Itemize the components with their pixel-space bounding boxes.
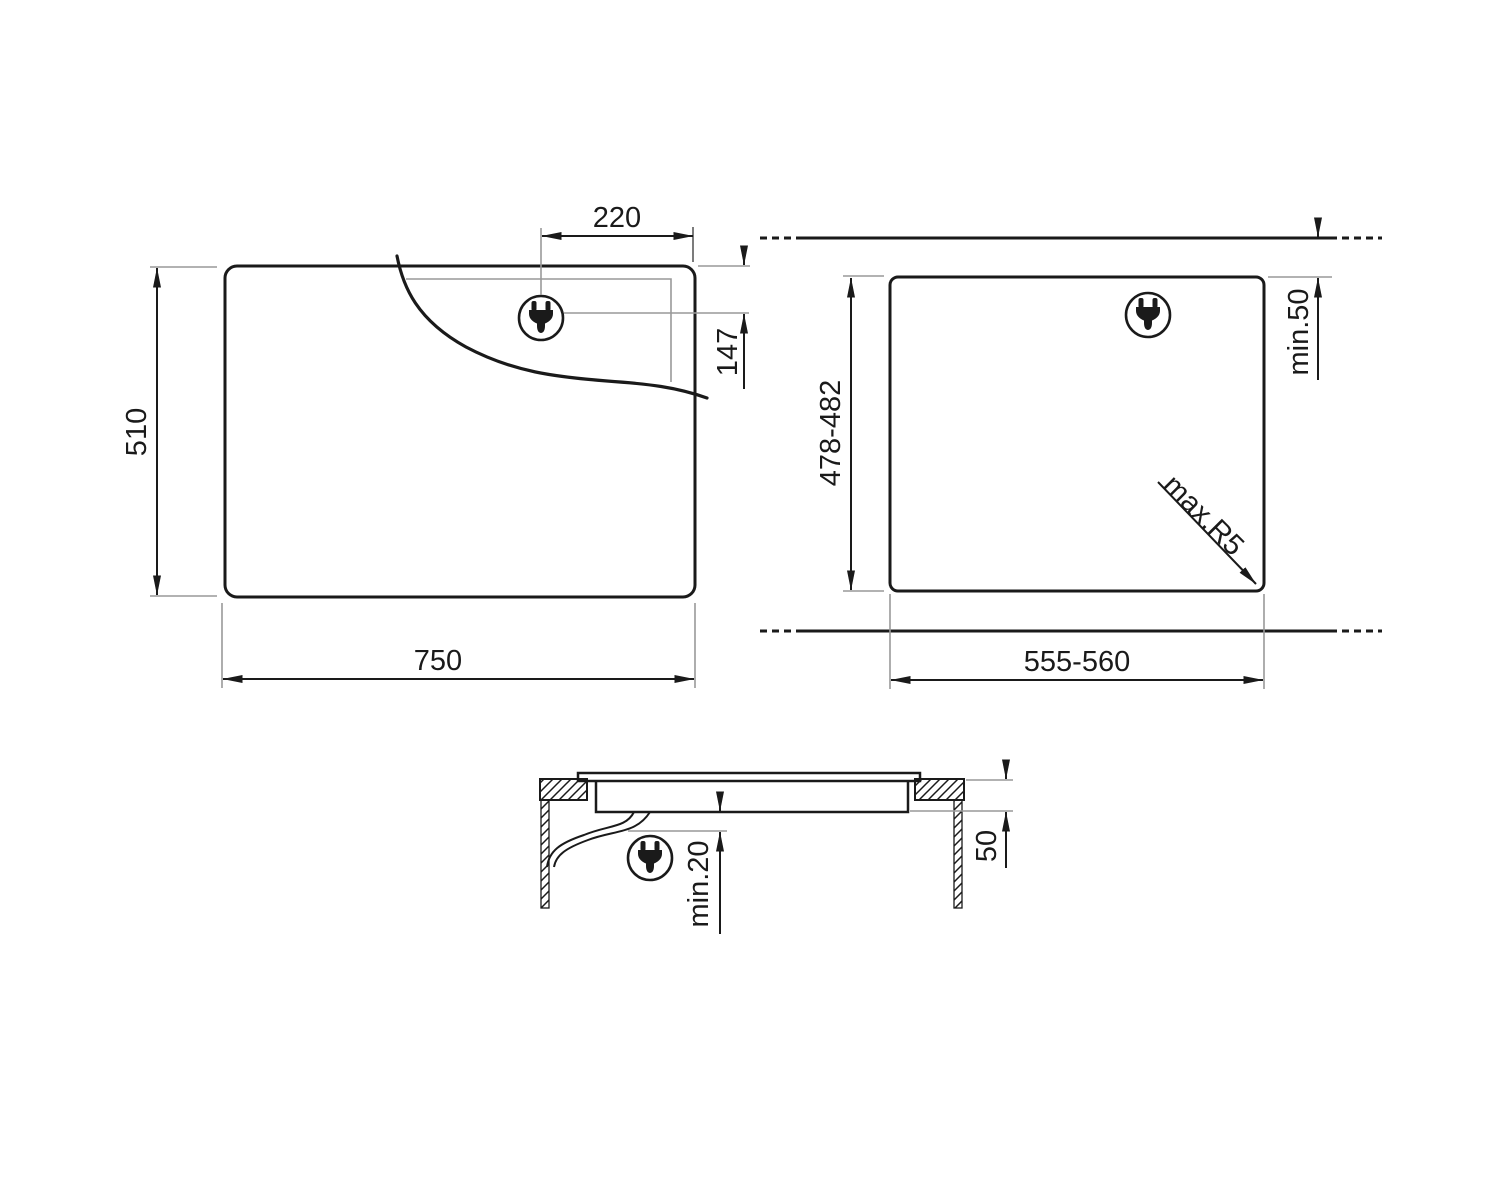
cabinet-panel-left [541,800,549,908]
hob-outline [225,266,695,597]
rear-clearance-label: min.50 [1283,288,1315,375]
worktop-section-left [540,779,587,800]
cutout-depth-label: 478-482 [815,380,847,486]
power-plug-icon [519,296,563,340]
plan-width-label: 750 [414,645,462,677]
recess-depth-label: 50 [971,830,1003,862]
hob-body-section [596,780,908,812]
extension-line [150,267,217,596]
bottom-clearance-label: min.20 [683,840,715,927]
section-view: min.20 50 [540,763,1013,934]
power-plug-icon [1126,293,1170,337]
plug-offset-x-label: 220 [593,202,641,234]
power-plug-icon [628,836,672,880]
extension-line [843,276,884,591]
plan-depth-label: 510 [121,408,153,456]
hob-dimension-diagram: 220 147 510 750 m [0,0,1500,1200]
plug-offset-y-label: 147 [712,328,744,376]
technical-drawing-page: 220 147 510 750 m [0,0,1500,1200]
cabinet-panel-right [954,800,962,908]
glass-plate-section [578,773,920,781]
plan-view: 220 147 510 750 [121,202,750,688]
cutout-view: min.50 478-482 555-560 max.R5 [760,220,1382,689]
worktop-section-right [915,779,964,800]
cutout-width-label: 555-560 [1024,646,1130,678]
cutout-outline [890,277,1264,591]
